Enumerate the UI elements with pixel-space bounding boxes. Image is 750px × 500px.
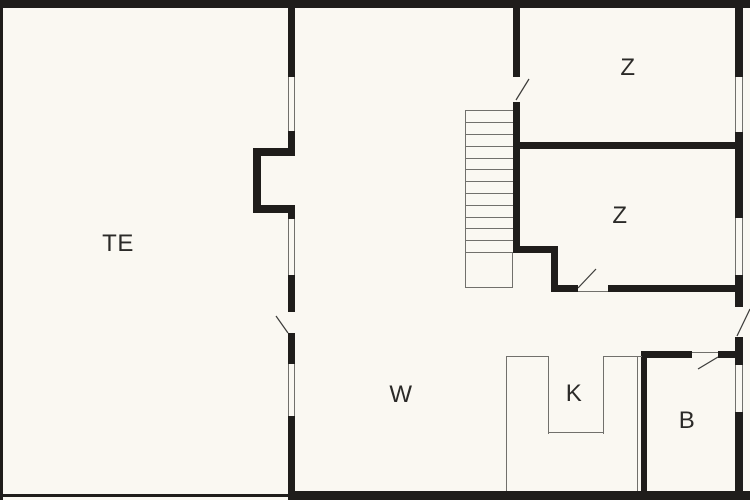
stair-edge-top [465, 110, 513, 111]
window-line [742, 365, 743, 412]
room-label-bedroom-bottom: Z [612, 202, 627, 230]
wall-terrace-east-5 [288, 333, 295, 364]
stair-tread [465, 228, 513, 229]
wall-terrace-east-4 [288, 275, 295, 312]
window-line [742, 218, 743, 275]
window-line [288, 219, 289, 275]
stair-edge-right [512, 253, 513, 288]
wall-stairhall-east-2 [513, 102, 520, 253]
stair-tread [465, 252, 513, 253]
window-line [735, 77, 736, 132]
wall-bedroom-bottom-south-2 [608, 285, 743, 292]
room-label-kitchen: K [566, 380, 583, 408]
wall-terrace-left-thin [0, 0, 3, 500]
wall-exterior-top [0, 0, 750, 8]
stair-edge-left [465, 110, 466, 288]
window-line [288, 77, 289, 131]
kitchen-counter-right [637, 356, 638, 491]
door-swing-bathroom [698, 357, 718, 369]
floor-plan-canvas: TE W K B Z Z [0, 0, 750, 500]
door-threshold [578, 291, 608, 292]
stair-tread [465, 240, 513, 241]
wall-niche-bottom [253, 205, 295, 213]
wall-exterior-right-5 [735, 412, 743, 500]
stair-edge-bottom [465, 287, 513, 288]
wall-stairhall-east-1 [513, 0, 520, 77]
room-label-bedroom-top: Z [620, 54, 635, 82]
stair-tread [465, 158, 513, 159]
wall-terrace-east-2 [288, 131, 295, 148]
stair-tread [465, 193, 513, 194]
kitchen-counter-top-left [506, 356, 549, 357]
window-line [288, 364, 289, 416]
room-label-living-hall: W [389, 381, 412, 409]
wall-exterior-bottom [288, 491, 750, 500]
door-swing-bedroom-bottom [578, 269, 596, 288]
door-swing-bedroom-top [516, 79, 529, 100]
wall-terrace-east-1 [288, 0, 295, 77]
door-swing-terrace [276, 316, 288, 333]
kitchen-notch-left [548, 356, 549, 434]
door-swing-entrance [737, 309, 750, 336]
wall-bathroom-top-2 [718, 351, 743, 358]
stair-tread [465, 181, 513, 182]
stair-tread [465, 146, 513, 147]
stair-tread [465, 134, 513, 135]
room-label-terrace: TE [102, 230, 134, 258]
room-label-bathroom: B [679, 407, 696, 435]
wall-bathroom-west [641, 351, 647, 500]
stair-tread [465, 205, 513, 206]
wall-terrace-bottom-thin [0, 494, 288, 497]
wall-niche-left [253, 148, 261, 213]
wall-bedroom-divider [513, 142, 743, 149]
kitchen-notch-bottom [548, 432, 604, 433]
kitchen-notch-right [603, 356, 604, 434]
wall-bedroom-bottom-south-1 [551, 285, 578, 292]
door-threshold [692, 352, 718, 353]
window-line [735, 218, 736, 275]
wall-bathroom-top-1 [641, 351, 692, 358]
wall-terrace-east-6 [288, 416, 295, 500]
window-line [294, 364, 295, 416]
stair-tread [465, 169, 513, 170]
window-line [742, 77, 743, 132]
stair-tread [465, 122, 513, 123]
wall-exterior-right-1 [735, 0, 743, 77]
window-line [294, 77, 295, 131]
window-line [735, 365, 736, 412]
window-line [294, 219, 295, 275]
stair-tread [465, 217, 513, 218]
kitchen-counter-top-right [603, 356, 642, 357]
kitchen-counter-left [506, 356, 507, 491]
